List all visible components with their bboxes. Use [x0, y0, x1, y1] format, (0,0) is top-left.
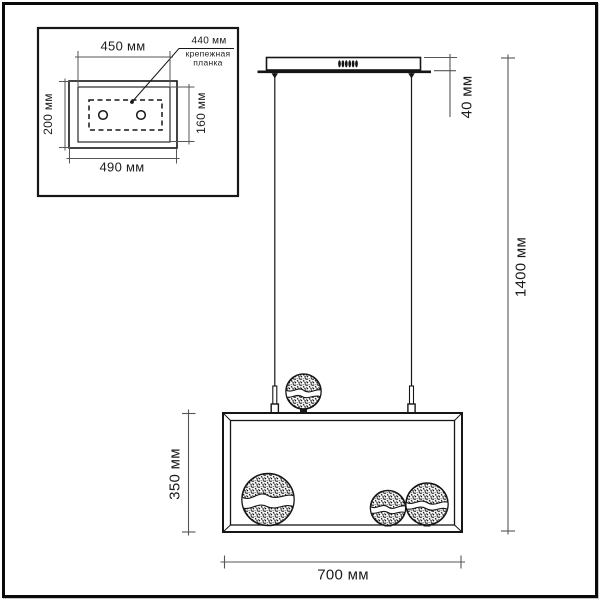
ceiling-canopy — [258, 58, 432, 79]
dim-shade-height — [182, 410, 196, 536]
wire-connector-left — [271, 386, 278, 414]
shade-height-label: 350 мм — [167, 448, 184, 500]
suspension-wires — [271, 73, 415, 414]
inset-inner-height-label: 160 мм — [194, 92, 208, 134]
dim-canopy-height — [424, 54, 457, 117]
technical-drawing — [0, 0, 600, 600]
inset-bracket-width-label: 440 мм — [191, 36, 226, 47]
wire-connector-right — [408, 386, 415, 414]
shade-width-label: 700 мм — [317, 567, 369, 584]
dimension-drawing-page: 450 мм 440 мм крепежная планка 200 мм 16… — [0, 0, 600, 600]
canopy-height-label: 40 мм — [459, 76, 476, 119]
overall-height-label: 1400 мм — [513, 237, 530, 297]
inset-outer-width-label: 490 мм — [100, 160, 145, 175]
inset-inner-width-label: 450 мм — [101, 39, 146, 54]
glass-sphere-top — [285, 374, 322, 413]
inset-outer-height-label: 200 мм — [41, 93, 55, 135]
glass-sphere-large — [241, 474, 295, 527]
inset-bracket-note: крепежная планка — [178, 50, 238, 69]
